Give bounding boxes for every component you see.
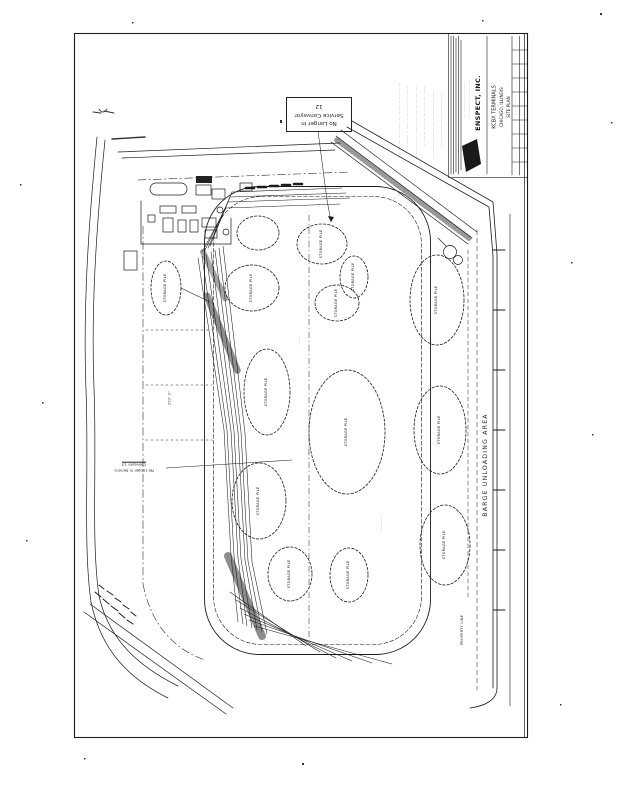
conveyor-corridor: [198, 246, 392, 664]
office-building: [150, 183, 187, 195]
callout-line-3: 12: [315, 102, 322, 111]
company-address-line-2: ······ ······· ··· ····· ··· ······: [469, 80, 472, 120]
drawing-sheet: STORAGE PILE STORAGE PILE STORAGE PILE S…: [0, 0, 618, 800]
storage-pile-label: STORAGE PILE: [443, 531, 447, 560]
notes-line: ····· ······· ···· ···· ········ ··· ···…: [440, 94, 443, 146]
storage-pile-label: STORAGE PILE: [352, 263, 356, 292]
notes-line: ·········· ···· ····· ········ ··· ·····…: [398, 82, 401, 157]
storage-piles: [151, 216, 470, 602]
barge-area-label: BARGE UNLOADING AREA: [483, 413, 489, 516]
dock-conveyor: [331, 130, 477, 265]
callout-line-1: No Longer in: [301, 119, 337, 128]
notes-line: ···· ········ ·· ······· ········ ····· …: [406, 86, 409, 150]
service-note: No Longer in Service Conveyor 13: [114, 462, 153, 473]
storage-pile-label: STORAGE PILE: [435, 286, 439, 315]
conveyor-label: ·······: [298, 337, 301, 346]
title-project: KCBX TERMINALS: [493, 85, 498, 129]
mooring-dolphin: [454, 256, 463, 265]
storage-pile-label: STORAGE PILE: [438, 416, 442, 445]
mooring-dolphin: [444, 246, 457, 259]
conveyor-label: ······ ····: [307, 445, 310, 458]
notes-line: ········· ···· ······ ··· ········ ·····…: [432, 90, 435, 158]
west-shed: [124, 251, 137, 270]
storage-pile-label: STORAGE PILE: [250, 274, 254, 303]
storage-pile-label: STORAGE PILE: [257, 487, 261, 516]
property-line-label: PROPERTY LINE: [461, 615, 465, 645]
callout-line-2: Service Conveyor: [294, 110, 343, 119]
gate-building: [196, 176, 212, 183]
title-company: ENSPECT, INC.: [475, 75, 482, 131]
title-grid-dots: ·· · ··· · ·· · ··: [515, 95, 518, 116]
callout-box: No Longer in Service Conveyor 12: [286, 97, 352, 132]
storage-pile-label: STORAGE PILE: [265, 378, 269, 407]
storage-pile-label: STORAGE PILE: [288, 560, 292, 589]
storage-pile-label: STORAGE PILE: [320, 230, 324, 259]
company-logo: [462, 139, 481, 172]
storage-pile-label: STORAGE PILE: [335, 289, 339, 318]
dimension-label: 250'-0": [168, 391, 171, 405]
callout-text: No Longer in Service Conveyor 12: [287, 98, 351, 131]
notes-line: ··· ········· ······ ·· ····· ······· ··…: [423, 86, 426, 147]
title-sheet-title: SITE PLAN: [507, 96, 511, 117]
company-address-line-1: ···· ········ ······ ···· ·····: [464, 82, 467, 118]
notes-line: ········ ····· ···· ········· ······ ···…: [415, 85, 418, 159]
storage-pile-label: STORAGE PILE: [347, 561, 351, 590]
conveyor-label: ···· ·······: [380, 516, 383, 531]
service-note-line-1: No Longer in Service: [114, 468, 153, 474]
title-location: CHICAGO, ILLINOIS: [500, 87, 504, 127]
storage-pile-label: STORAGE PILE: [164, 274, 168, 303]
storage-pile-label: STORAGE PILE: [345, 418, 349, 447]
